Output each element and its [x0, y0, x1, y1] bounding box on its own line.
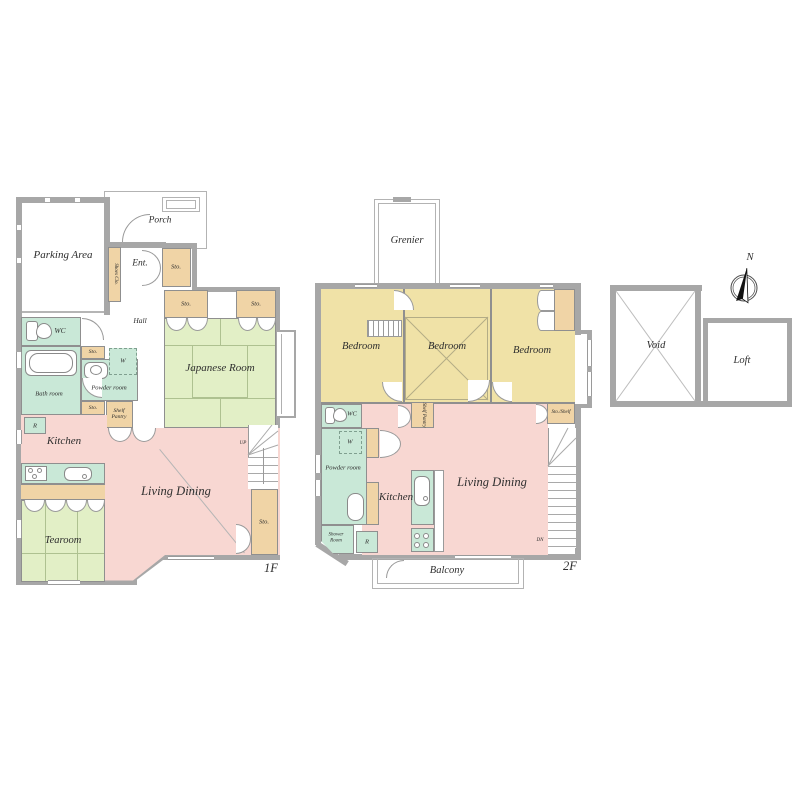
- room-label-shower: Shower Room: [324, 532, 348, 543]
- wall-segment: [703, 318, 708, 407]
- burner-icon: [414, 542, 420, 548]
- compass-icon: [728, 268, 762, 306]
- bathtub-icon-2f: [347, 493, 364, 521]
- stairs-direction-line: [263, 448, 264, 484]
- kitchen-counter-2f: [434, 470, 444, 552]
- parking-gate-line: [16, 311, 110, 313]
- bathtub-icon-inner: [29, 353, 73, 373]
- room-label-living-dining2: Living Dining: [457, 475, 527, 489]
- room-label-ent: Ent.: [132, 259, 148, 270]
- room-label-japanese: Japanese Room: [184, 362, 256, 374]
- window: [540, 284, 553, 288]
- floor-label-1f: 1F: [264, 561, 278, 575]
- room-label-sto: Sto.: [181, 300, 191, 307]
- room-label-wc: WC: [54, 327, 65, 335]
- wall-notch: [17, 258, 21, 263]
- closet-door-arc: [537, 311, 554, 331]
- kitchen-sink-icon-1f: [64, 467, 92, 481]
- storage-strip: [366, 482, 379, 525]
- stove-2f: [411, 528, 434, 552]
- room-label-sto: Sto.: [171, 263, 181, 270]
- wall-segment: [787, 318, 792, 407]
- tatami-line: [220, 319, 221, 346]
- door-arc-wc: [82, 318, 104, 340]
- window: [587, 372, 592, 396]
- room-label-bedroom: Bedroom: [513, 345, 551, 357]
- floor-label-2f: 2F: [563, 559, 577, 573]
- window: [48, 580, 80, 585]
- room-label-sto: Sto.: [259, 518, 269, 525]
- room-label-grenier: Grenier: [391, 235, 424, 247]
- wall-segment: [16, 197, 110, 203]
- bay-window-glass-line: [281, 334, 282, 414]
- bay-window: [277, 330, 296, 418]
- room-label-powder: Powder room: [88, 384, 130, 391]
- window: [16, 520, 22, 538]
- wall-notch: [17, 225, 21, 230]
- wall-segment: [575, 283, 581, 335]
- drain-icon: [423, 496, 428, 501]
- stairs-dn-label: DN: [537, 538, 544, 544]
- porch-step-inner: [166, 200, 196, 209]
- kitchen-floor-strip: [21, 484, 105, 500]
- room-label-living-dining: Living Dining: [141, 484, 211, 498]
- room-label-sto: Sto.: [89, 405, 97, 411]
- room-label-powder2: Powder room: [323, 464, 363, 471]
- room-label-shoes-clo: Shoes Clo.: [112, 263, 118, 284]
- tatami-line: [220, 398, 221, 427]
- room-label-bedroom: Bedroom: [428, 341, 466, 353]
- stairs-2f-winder-lines: [548, 428, 576, 468]
- fridge-label-2f: R: [365, 538, 369, 545]
- washer-label: W: [120, 357, 125, 364]
- wall-segment: [703, 318, 792, 323]
- burner-icon: [423, 533, 429, 539]
- room-label-bedroom: Bedroom: [342, 341, 380, 353]
- compass-north-label: N: [746, 252, 753, 264]
- room-label-wc2: WC: [347, 410, 357, 417]
- grenier-ladder-icon: [367, 320, 402, 337]
- wall-notch: [75, 198, 80, 202]
- wall-segment: [610, 401, 792, 407]
- stairs-up-label: UP: [240, 441, 247, 447]
- washer-label-2f: W: [347, 438, 352, 445]
- bedroom3-closet: [554, 289, 575, 331]
- window: [16, 430, 22, 444]
- window: [168, 556, 214, 560]
- room-label-kitchen2: Kitchen: [379, 491, 413, 503]
- room-label-sto: Sto.: [89, 349, 97, 355]
- window: [355, 284, 377, 288]
- room-label-kitchen: Kitchen: [47, 435, 81, 447]
- closet-door-arc: [537, 290, 554, 311]
- window: [450, 284, 480, 288]
- fridge-label: R: [33, 422, 37, 429]
- room-label-pantry: Shelf Pantry: [106, 408, 132, 420]
- burner-icon: [414, 533, 420, 539]
- room-label-sto-shelf: Sto./Shelf: [551, 410, 570, 416]
- window: [587, 340, 592, 366]
- wall-notch: [45, 198, 50, 202]
- storage-strip: [366, 428, 379, 458]
- room-label-hall: Hall: [133, 317, 146, 325]
- room-label-void: Void: [647, 340, 666, 352]
- room-label-sto: Sto.: [251, 300, 261, 307]
- wall-segment: [393, 197, 411, 202]
- toilet-bowl-icon: [36, 323, 52, 339]
- sink-bowl-icon: [90, 365, 102, 375]
- room-label-bath: Bath room: [34, 390, 64, 397]
- drain-icon: [82, 474, 87, 479]
- island-sink-icon: [414, 476, 430, 506]
- window: [315, 455, 321, 473]
- burner-icon: [37, 468, 42, 473]
- burner-icon: [28, 468, 33, 473]
- stairs-2f-treads: [548, 466, 576, 548]
- floor-plan-canvas: Parking Area Porch Ent. Shoes Clo. Sto. …: [0, 0, 800, 800]
- tatami-line: [22, 553, 104, 554]
- room-label-porch: Porch: [149, 216, 172, 227]
- room-label-parking: Parking Area: [34, 249, 93, 261]
- room-label-loft: Loft: [734, 355, 751, 367]
- balcony-label: Balcony: [430, 565, 464, 577]
- burner-icon: [32, 474, 37, 479]
- window: [16, 352, 22, 368]
- wall-segment: [192, 243, 197, 292]
- burner-icon: [423, 542, 429, 548]
- toilet-bowl-icon: [333, 408, 347, 422]
- window: [315, 480, 321, 496]
- room-label-pantry2: Shelf Pantry: [420, 403, 426, 428]
- room-label-tearoom: Tearoom: [45, 535, 82, 547]
- wall-segment: [16, 197, 22, 315]
